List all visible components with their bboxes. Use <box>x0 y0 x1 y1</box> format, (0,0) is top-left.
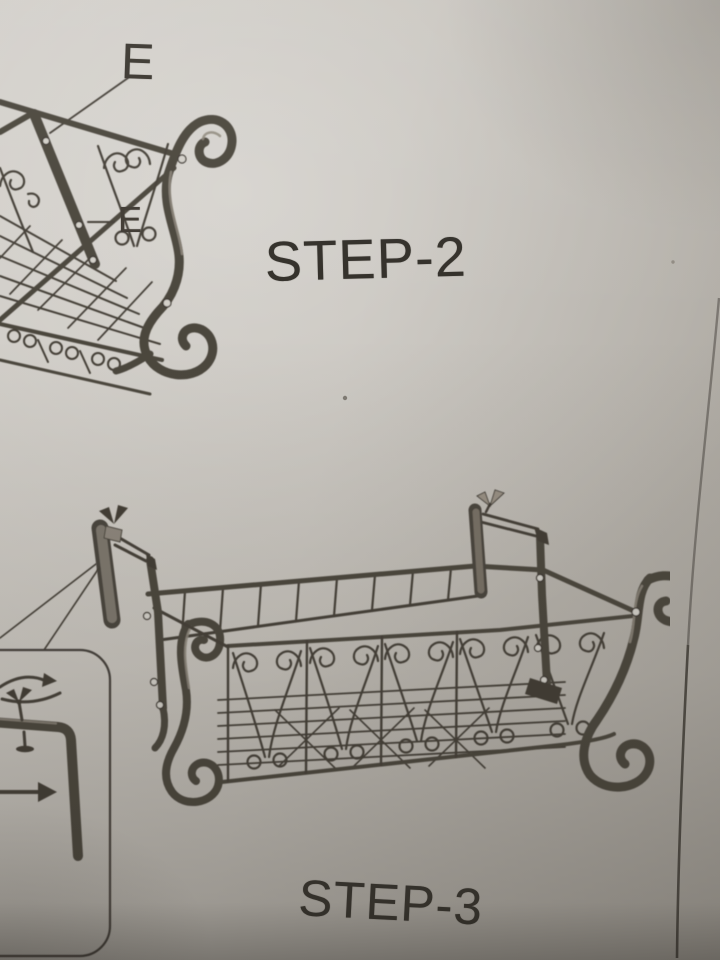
paper-speck <box>343 396 347 400</box>
paper-fold-line <box>677 645 688 958</box>
paper-speck <box>671 260 674 263</box>
instruction-page-photo: E E STEP-2 STEP-3 <box>0 0 720 960</box>
paper-fold-line <box>688 298 719 645</box>
photo-artifacts-overlay <box>0 0 720 960</box>
